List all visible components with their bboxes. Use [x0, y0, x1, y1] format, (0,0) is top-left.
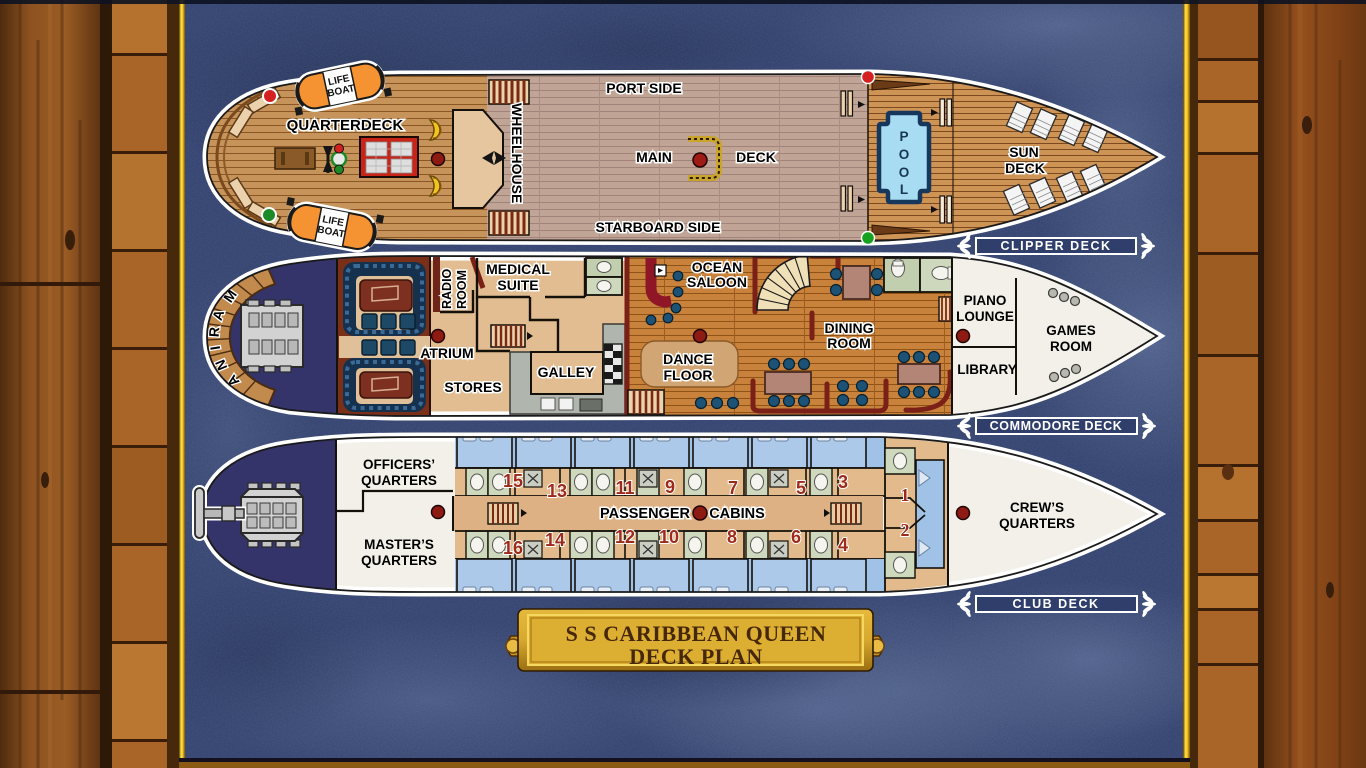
svg-text:O: O — [899, 165, 910, 180]
svg-text:QUARTERS: QUARTERS — [361, 553, 437, 568]
svg-text:PASSENGER: PASSENGER — [600, 506, 691, 522]
svg-text:DINING: DINING — [825, 320, 874, 336]
svg-text:SUN: SUN — [1009, 144, 1039, 160]
svg-text:10: 10 — [659, 527, 679, 547]
svg-text:QUARTERDECK: QUARTERDECK — [287, 117, 404, 134]
svg-text:15: 15 — [503, 471, 523, 491]
svg-text:LIBRARY: LIBRARY — [957, 362, 1017, 377]
svg-text:14: 14 — [545, 530, 565, 550]
svg-text:5: 5 — [796, 478, 806, 498]
svg-text:ATRIUM: ATRIUM — [420, 345, 473, 361]
svg-text:FLOOR: FLOOR — [664, 367, 713, 383]
svg-text:PIANO: PIANO — [964, 293, 1007, 308]
svg-text:OCEAN: OCEAN — [692, 259, 743, 275]
svg-text:6: 6 — [791, 527, 801, 547]
svg-text:SALOON: SALOON — [687, 274, 747, 290]
svg-text:DECK: DECK — [736, 149, 776, 165]
svg-text:WHEELHOUSE: WHEELHOUSE — [509, 103, 525, 203]
svg-text:CREW’S: CREW’S — [1010, 500, 1064, 515]
svg-text:7: 7 — [728, 478, 738, 498]
svg-text:12: 12 — [615, 527, 635, 547]
svg-text:3: 3 — [838, 472, 848, 492]
svg-text:16: 16 — [503, 538, 523, 558]
svg-text:13: 13 — [547, 481, 567, 501]
svg-text:STARBOARD SIDE: STARBOARD SIDE — [596, 219, 721, 235]
svg-text:RADIO: RADIO — [440, 268, 454, 309]
svg-text:O: O — [899, 147, 910, 162]
svg-text:S S CARIBBEAN QUEEN: S S CARIBBEAN QUEEN — [566, 621, 827, 646]
svg-text:9: 9 — [665, 477, 675, 497]
svg-text:ROOM: ROOM — [1050, 339, 1092, 354]
svg-text:P: P — [899, 129, 908, 144]
svg-text:SUITE: SUITE — [497, 277, 538, 293]
svg-text:STORES: STORES — [444, 379, 501, 395]
svg-text:1: 1 — [901, 485, 910, 505]
svg-text:ROOM: ROOM — [827, 335, 871, 351]
svg-text:MASTER’S: MASTER’S — [364, 537, 434, 552]
svg-text:QUARTERS: QUARTERS — [361, 473, 437, 488]
svg-text:GALLEY: GALLEY — [538, 364, 595, 380]
svg-text:CLIPPER DECK: CLIPPER DECK — [1000, 239, 1111, 253]
svg-text:8: 8 — [727, 527, 737, 547]
svg-text:LOUNGE: LOUNGE — [956, 309, 1014, 324]
svg-text:L: L — [900, 182, 908, 197]
svg-text:DECK PLAN: DECK PLAN — [629, 644, 762, 669]
svg-text:OFFICERS’: OFFICERS’ — [363, 457, 435, 472]
svg-text:MEDICAL: MEDICAL — [486, 261, 550, 277]
svg-text:11: 11 — [615, 478, 634, 498]
svg-text:PORT SIDE: PORT SIDE — [606, 80, 681, 96]
svg-text:MAIN: MAIN — [636, 149, 672, 165]
svg-text:CABINS: CABINS — [709, 506, 765, 522]
svg-text:4: 4 — [838, 535, 848, 555]
svg-text:CLUB DECK: CLUB DECK — [1012, 597, 1099, 611]
svg-text:2: 2 — [901, 520, 910, 540]
svg-text:DECK: DECK — [1005, 160, 1045, 176]
svg-text:DANCE: DANCE — [663, 351, 713, 367]
svg-text:QUARTERS: QUARTERS — [999, 516, 1075, 531]
svg-text:ROOM: ROOM — [455, 270, 469, 309]
svg-text:GAMES: GAMES — [1046, 323, 1096, 338]
svg-text:COMMODORE DECK: COMMODORE DECK — [990, 419, 1123, 433]
